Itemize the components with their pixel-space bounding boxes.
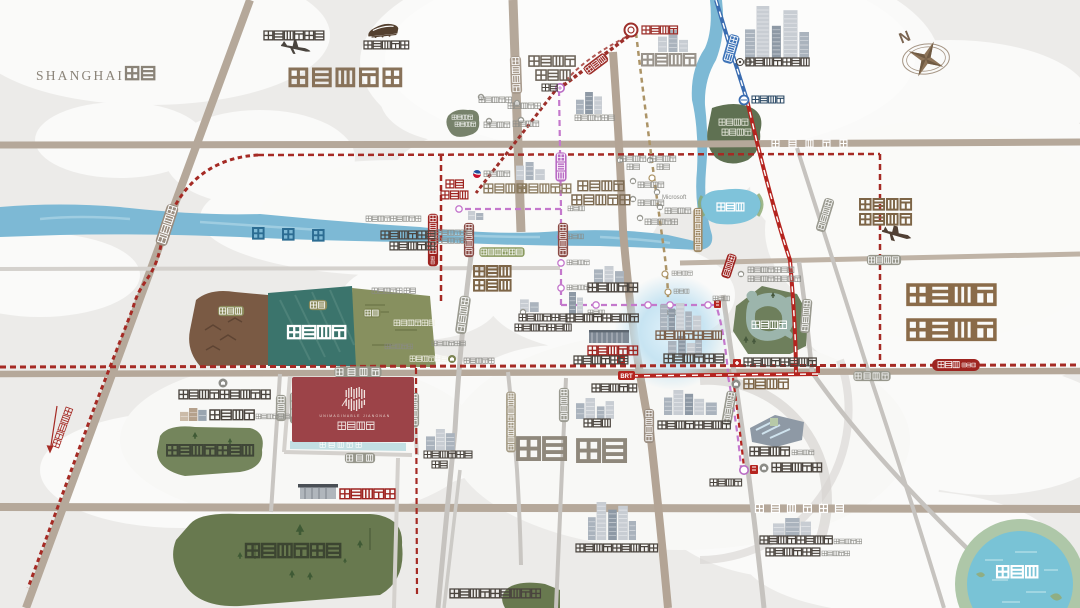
svg-text:SHANGHAI: SHANGHAI <box>36 68 124 83</box>
svg-text:BRT: BRT <box>620 374 633 380</box>
svg-text:UNIMAGINABLE JIANGNAN: UNIMAGINABLE JIANGNAN <box>319 414 390 418</box>
svg-text:Microsoft: Microsoft <box>662 195 687 201</box>
